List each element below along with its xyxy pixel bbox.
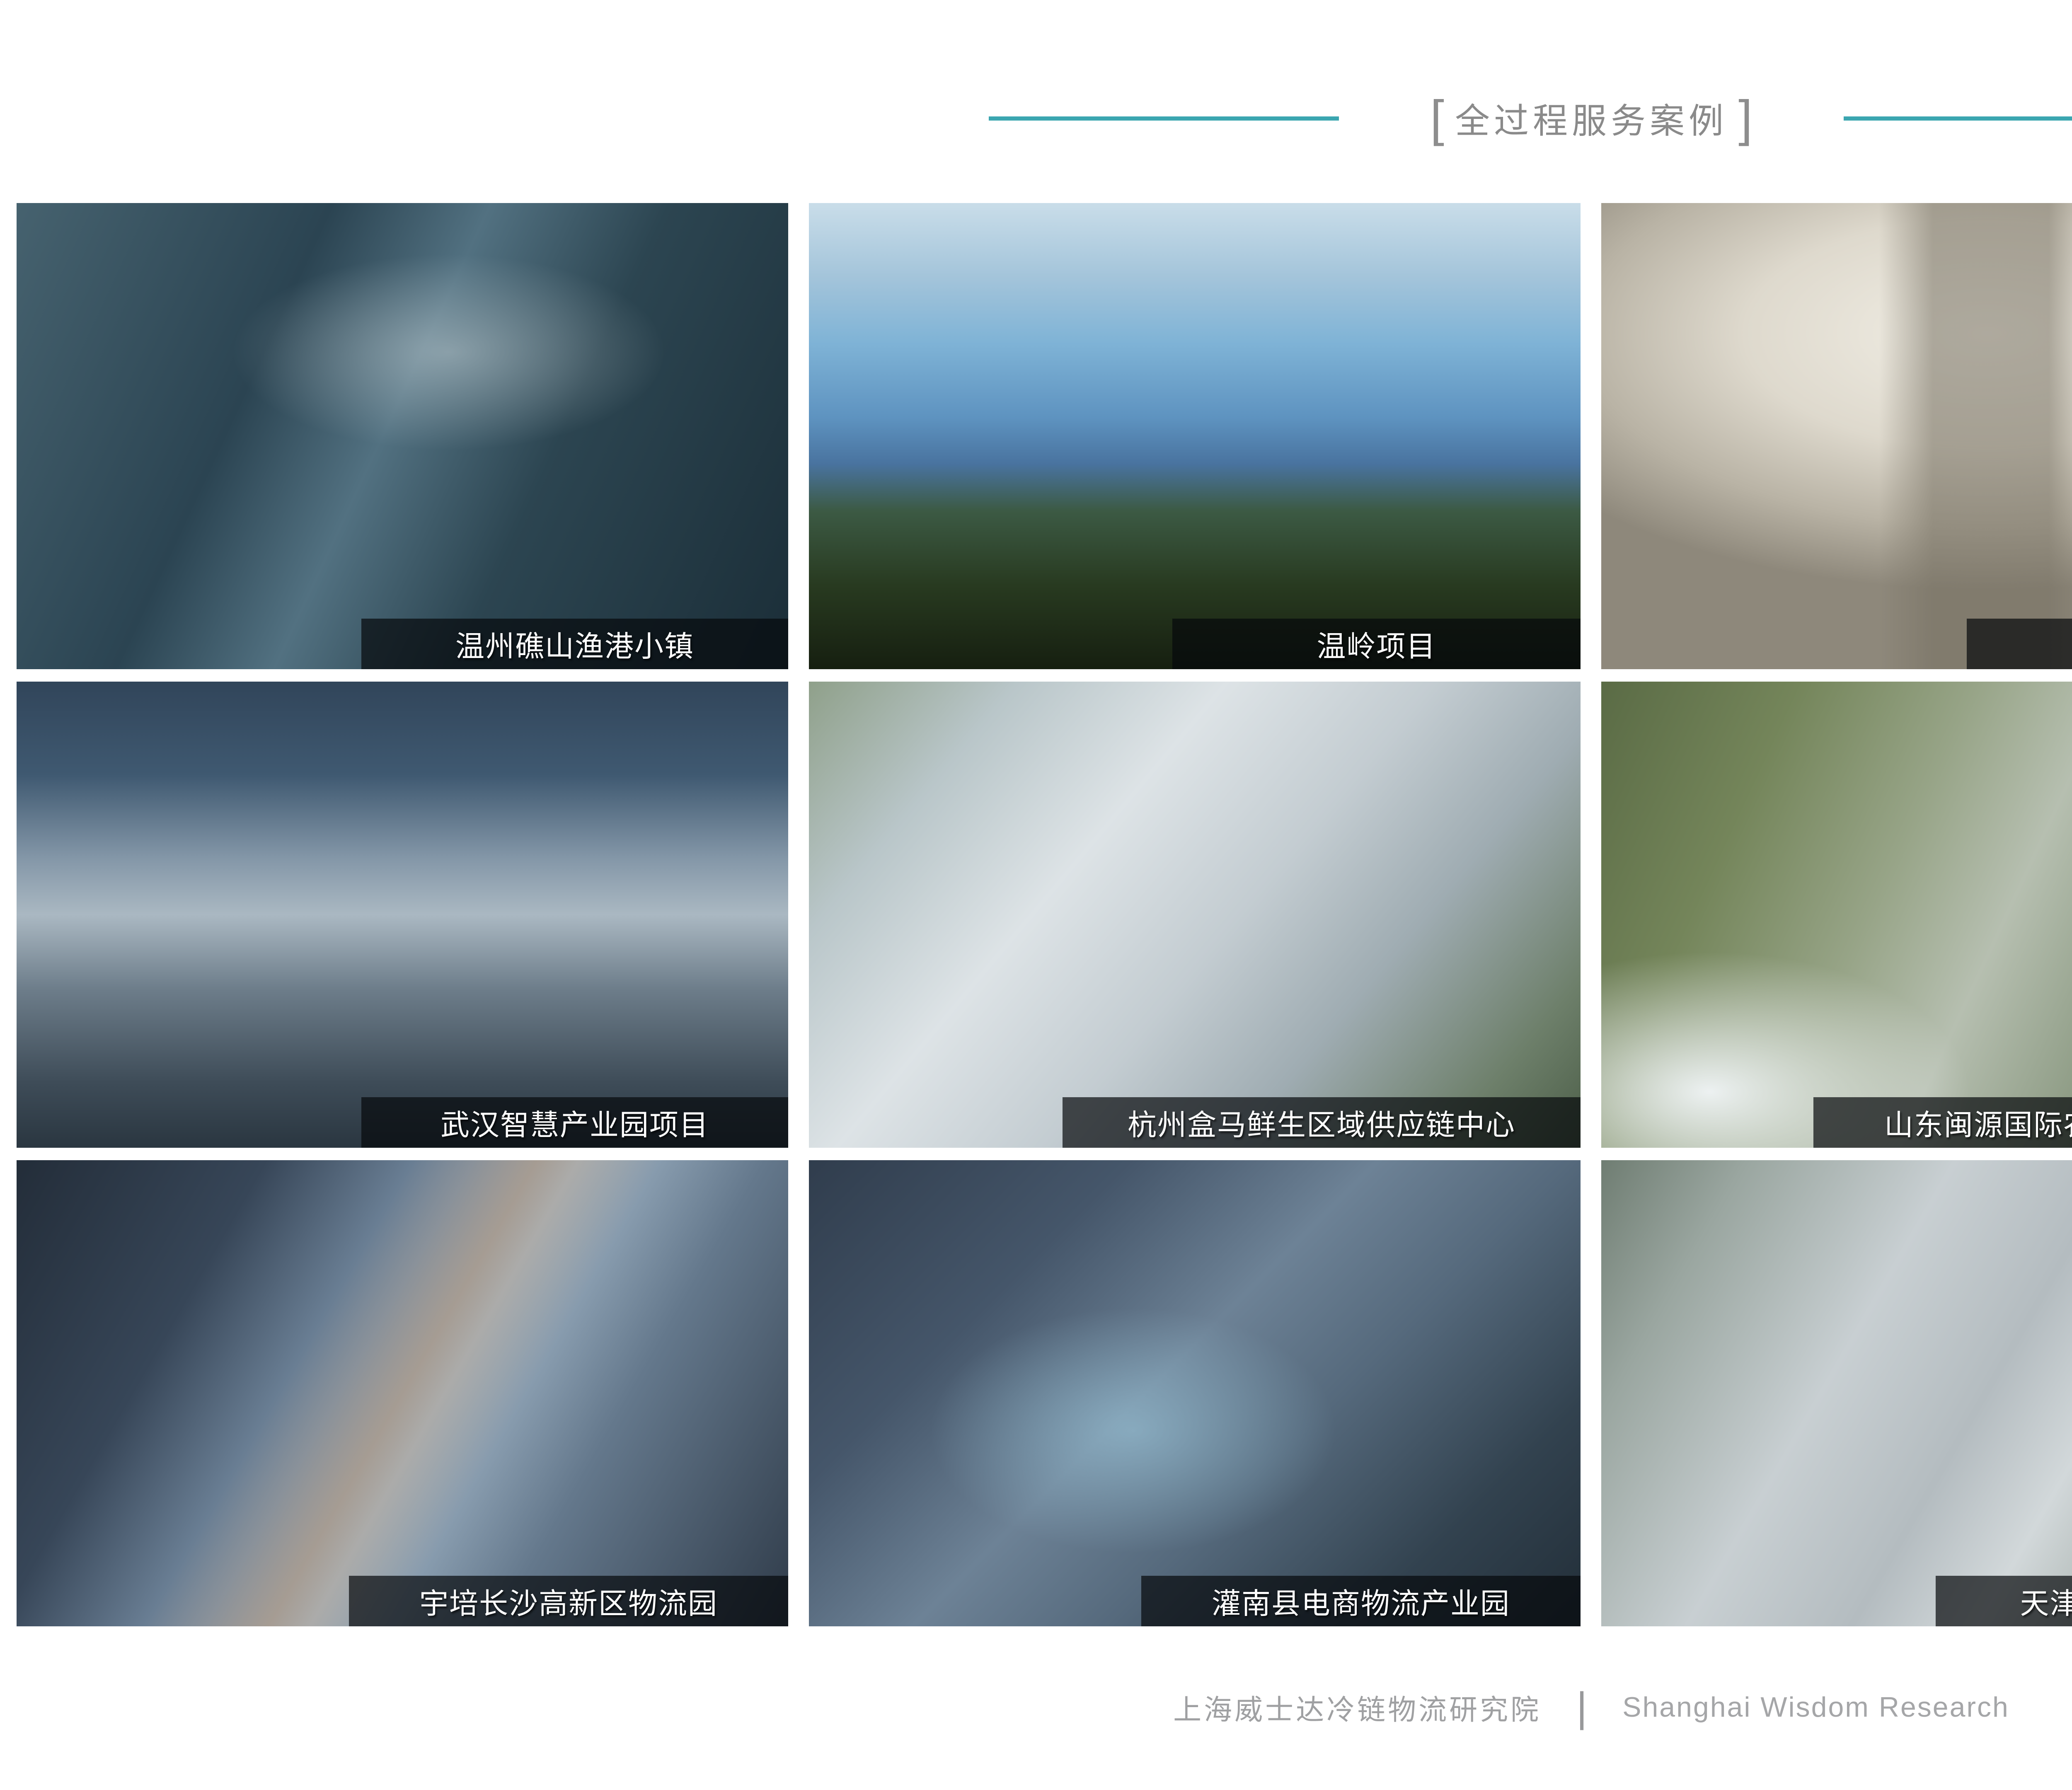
title-text: 全过程服务案例 [1455,93,1728,143]
slide-canvas: [ 全过程服务案例 ] 温州礁山渔港小镇 温岭项目 上海金山项目 舟山渔港项目 [0,0,2072,1790]
project-photo-guannan: 灌南县电商物流产业园 [809,1160,1581,1626]
project-caption: 武汉智慧产业园项目 [441,1102,709,1144]
project-photo-hangzhou-hema: 杭州盒马鲜生区域供应链中心 [809,682,1581,1148]
projects-grid: 温州礁山渔港小镇 温岭项目 上海金山项目 舟山渔港项目 武汉智慧产业园项目 [17,203,2072,1626]
footer-divider-bar: | [1576,1686,1587,1728]
project-photo-shanghai-jinshan: 上海金山项目 [1601,203,2072,669]
footer-company-name-en: Shanghai Wisdom Research [1622,1691,2009,1723]
title-bracket-left: [ [1430,96,1444,141]
slide-header: [ 全过程服务案例 ] [0,93,2072,143]
footer-company-name-cn: 上海威士达冷链物流研究院 [1173,1687,1541,1728]
project-photo-wenling: 温岭项目 [809,203,1581,669]
project-photo-shandong-minyuan: 山东闽源国际农产品物流产业园 [1601,682,2072,1148]
project-caption: 山东闽源国际农产品物流产业园 [1884,1102,2072,1144]
header-line-left [989,116,1339,121]
title-bracket-right: ] [1738,96,1752,141]
project-caption-bar: 上海金山项目 [1967,619,2072,669]
project-caption-bar: 山东闽源国际农产品物流产业园 [1813,1097,2072,1148]
project-caption: 灌南县电商物流产业园 [1212,1580,1510,1622]
project-caption: 温岭项目 [1317,623,1436,665]
project-photo-wuhan: 武汉智慧产业园项目 [17,682,788,1148]
project-caption-bar: 灌南县电商物流产业园 [1141,1576,1581,1626]
page-title: [ 全过程服务案例 ] [1430,93,1752,143]
project-caption: 温州礁山渔港小镇 [455,623,694,665]
project-photo-wenzhou-jiaoshan: 温州礁山渔港小镇 [17,203,788,669]
project-caption-bar: 宇培长沙高新区物流园 [349,1576,788,1626]
project-caption-bar: 杭州盒马鲜生区域供应链中心 [1063,1097,1581,1148]
project-photo-yupei-changsha: 宇培长沙高新区物流园 [17,1160,788,1626]
slide-footer: 上海威士达冷链物流研究院 | Shanghai Wisdom Research [0,1686,2072,1728]
project-photo-tianjin: 天津农产品加工项目 [1601,1160,2072,1626]
project-caption-bar: 武汉智慧产业园项目 [361,1097,788,1148]
project-caption-bar: 温州礁山渔港小镇 [361,619,788,669]
header-line-right [1844,116,2072,121]
project-caption: 杭州盒马鲜生区域供应链中心 [1128,1102,1515,1144]
project-caption: 宇培长沙高新区物流园 [419,1580,718,1622]
project-caption-bar: 温岭项目 [1172,619,1581,669]
project-caption: 天津农产品加工项目 [2020,1580,2072,1622]
project-caption-bar: 天津农产品加工项目 [1936,1576,2072,1626]
